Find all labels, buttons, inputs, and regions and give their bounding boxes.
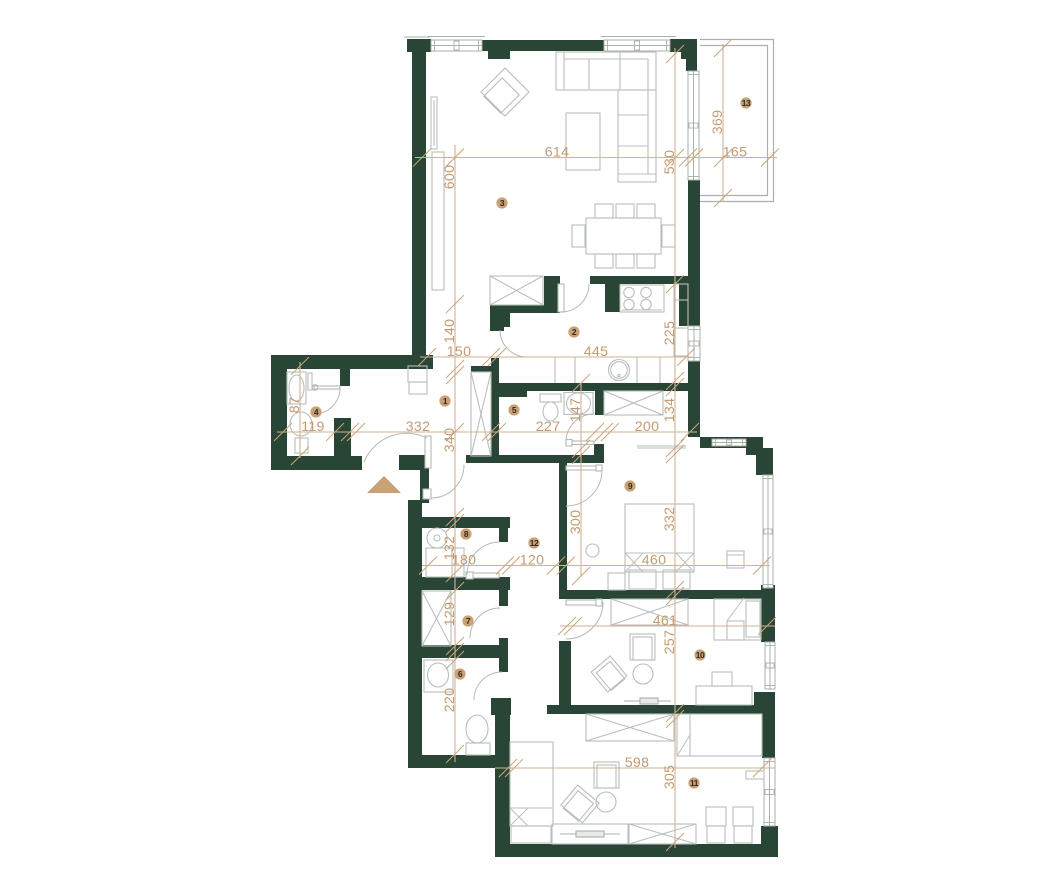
svg-text:445: 445 bbox=[584, 344, 609, 360]
svg-text:227: 227 bbox=[536, 419, 561, 435]
svg-text:140: 140 bbox=[442, 319, 458, 344]
svg-text:220: 220 bbox=[442, 688, 458, 713]
svg-text:11: 11 bbox=[690, 778, 699, 788]
svg-text:200: 200 bbox=[635, 419, 660, 435]
svg-text:120: 120 bbox=[520, 553, 545, 569]
svg-text:600: 600 bbox=[442, 165, 458, 190]
svg-text:614: 614 bbox=[545, 145, 570, 161]
svg-text:332: 332 bbox=[406, 419, 431, 435]
svg-text:150: 150 bbox=[447, 344, 472, 360]
svg-text:598: 598 bbox=[625, 755, 650, 771]
svg-text:132: 132 bbox=[442, 536, 458, 561]
svg-text:461: 461 bbox=[653, 613, 678, 629]
svg-text:10: 10 bbox=[696, 650, 705, 660]
svg-text:300: 300 bbox=[568, 510, 584, 535]
svg-text:165: 165 bbox=[723, 145, 748, 161]
svg-text:305: 305 bbox=[662, 765, 678, 790]
svg-text:87: 87 bbox=[287, 397, 303, 413]
svg-text:460: 460 bbox=[642, 553, 667, 569]
svg-text:225: 225 bbox=[662, 321, 678, 346]
svg-text:332: 332 bbox=[662, 507, 678, 532]
svg-text:340: 340 bbox=[442, 428, 458, 453]
svg-text:530: 530 bbox=[662, 150, 678, 175]
svg-text:119: 119 bbox=[301, 419, 325, 435]
svg-text:134: 134 bbox=[662, 398, 678, 423]
svg-text:13: 13 bbox=[742, 98, 751, 108]
svg-text:147: 147 bbox=[568, 398, 584, 423]
svg-text:12: 12 bbox=[530, 538, 539, 548]
svg-text:129: 129 bbox=[442, 602, 458, 627]
svg-text:369: 369 bbox=[710, 110, 726, 135]
svg-text:257: 257 bbox=[662, 630, 678, 655]
